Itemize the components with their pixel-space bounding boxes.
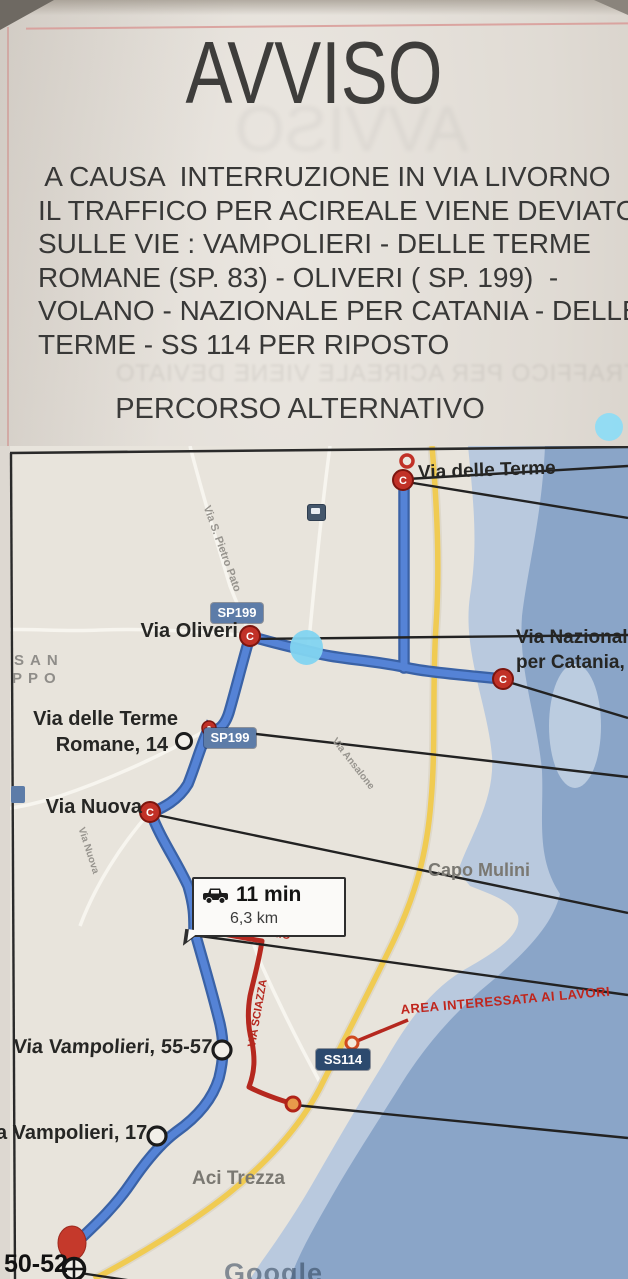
stop-label-per-catania: per Catania, 104 [516, 652, 628, 674]
body-line: TERME - SS 114 PER RIPOSTO [38, 328, 628, 362]
place-label-capo-mulini: Capo Mulini [428, 860, 530, 881]
stop-label-terme-romane-2: Romane, 14 [0, 734, 168, 757]
stop-label-vampolieri-17: a Vampolieri, 17 [0, 1122, 147, 1145]
stop-label-50-52: 50-52 [4, 1250, 68, 1279]
place-label-aci-trezza: Aci Trezza [192, 1168, 285, 1190]
body-line: A CAUSA INTERRUZIONE IN VIA LIVORNO [38, 160, 628, 194]
notice-subtitle: PERCORSO ALTERNATIVO [0, 393, 600, 426]
clipped-road-shield [11, 786, 25, 803]
region-label-line1: SAN [14, 652, 64, 669]
body-line: ROMANE (SP. 83) - OLIVERI ( SP. 199) - [38, 261, 628, 295]
stop-label-terme-romane-1: Via delle Terme [0, 708, 178, 731]
works-ring-marker [286, 1097, 300, 1111]
waypoint-letter: C [146, 807, 154, 819]
stop-label-via-oliveri: Via Oliveri [118, 620, 238, 643]
notice-photo: AVVISO AVVISO A CAUSA INTERRUZIONE IN VI… [0, 0, 628, 1279]
body-line: SULLE VIE : VAMPOLIERI - DELLE TERME [38, 227, 628, 261]
transit-stop-icon [307, 504, 326, 521]
car-icon [202, 887, 229, 904]
poster-border-left [7, 27, 9, 447]
road-shield-sp199: SP199 [204, 728, 256, 748]
waypoint-letter: C [246, 631, 254, 643]
info-bubble-pointer-fill [187, 929, 201, 943]
route-distance: 6,3 km [230, 910, 278, 928]
stop-label-via-nuova: Via Nuova [40, 796, 142, 819]
cyan-highlight-dot [290, 630, 323, 665]
route-duration: 11 min [236, 883, 301, 907]
works-ring-marker [346, 1037, 358, 1049]
body-line: IL TRAFFICO PER ACIREALE VIENE DEVIATO [38, 194, 628, 228]
photo-corner-top-left [0, 0, 54, 30]
map-watermark: Google [224, 1258, 323, 1279]
photo-corner-top-right [594, 0, 628, 15]
cyan-highlight-dot [595, 413, 623, 441]
stop-label-via-nazionale: Via Nazionale [516, 627, 628, 649]
bleed-through-line: IL TRAFFICO PER ACIREALE VIENE DEVIATO [115, 360, 628, 388]
body-line: VOLANO - NAZIONALE PER CATANIA - DELLE [38, 294, 628, 328]
white-stop-marker [213, 1041, 231, 1059]
white-stop-marker [148, 1127, 166, 1145]
white-stop-marker [177, 734, 192, 749]
open-red-marker [401, 455, 413, 467]
waypoint-letter: C [399, 475, 407, 487]
route-info-bubble: 11 min 6,3 km [192, 877, 346, 937]
region-label-line2: PPO [12, 670, 62, 687]
notice-title: AVVISO [63, 22, 565, 124]
road-shield-ss114: SS114 [316, 1049, 370, 1070]
paper-margin [0, 446, 10, 1279]
waypoint-letter: C [499, 674, 507, 686]
notice-body: A CAUSA INTERRUZIONE IN VIA LIVORNO IL T… [38, 160, 628, 361]
route-map: C C C C [0, 446, 628, 1279]
stop-label-vampolieri-55-57: Via Vampolieri, 55-57 [9, 1036, 213, 1059]
